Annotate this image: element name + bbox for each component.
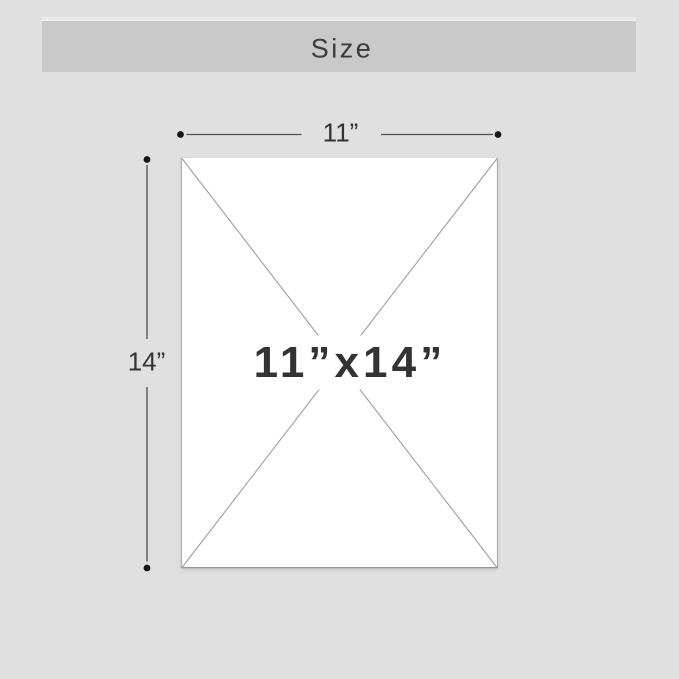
svg-text:11”x14”: 11”x14” xyxy=(254,338,447,387)
svg-text:11”: 11” xyxy=(323,118,359,148)
svg-text:Size: Size xyxy=(311,34,374,64)
svg-text:14”: 14” xyxy=(128,347,166,377)
